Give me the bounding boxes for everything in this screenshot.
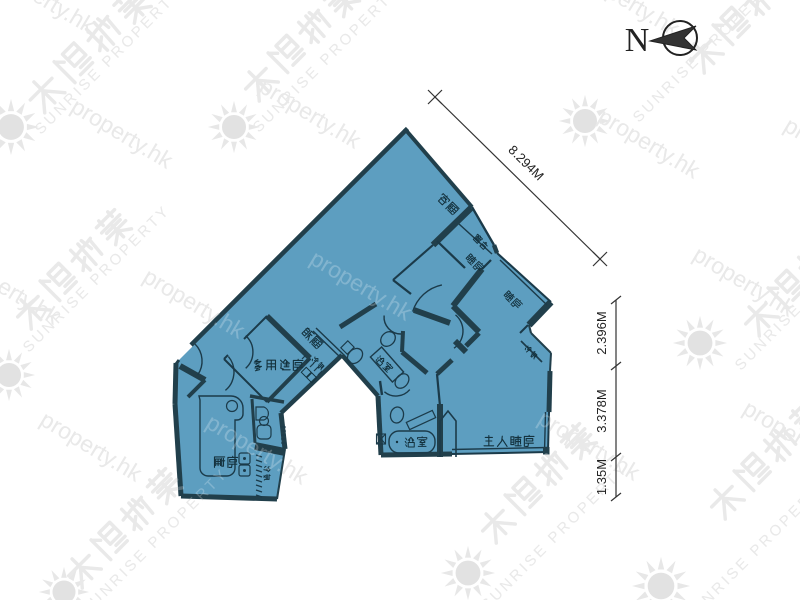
svg-text:8.294M: 8.294M [505, 142, 546, 183]
svg-text:1.35M: 1.35M [594, 459, 609, 495]
svg-text:2.396M: 2.396M [594, 311, 609, 354]
svg-text:3.378M: 3.378M [594, 389, 609, 432]
svg-text:N: N [625, 22, 650, 59]
